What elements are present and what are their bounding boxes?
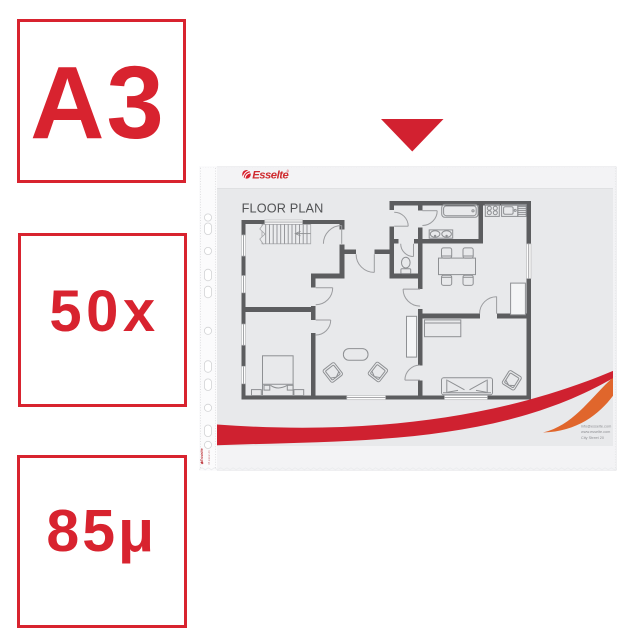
svg-text:85 micron A3: 85 micron A3 (208, 450, 211, 465)
svg-text:◆Esselte: ◆Esselte (200, 448, 204, 464)
svg-text:City Street 20: City Street 20 (581, 436, 604, 440)
svg-text:www.esselte.com: www.esselte.com (581, 430, 610, 434)
svg-text:Esselte: Esselte (252, 169, 288, 181)
svg-text:®: ® (287, 170, 290, 174)
svg-text:info@esselte.com: info@esselte.com (581, 425, 611, 429)
svg-text:FLOOR PLAN: FLOOR PLAN (242, 201, 324, 215)
